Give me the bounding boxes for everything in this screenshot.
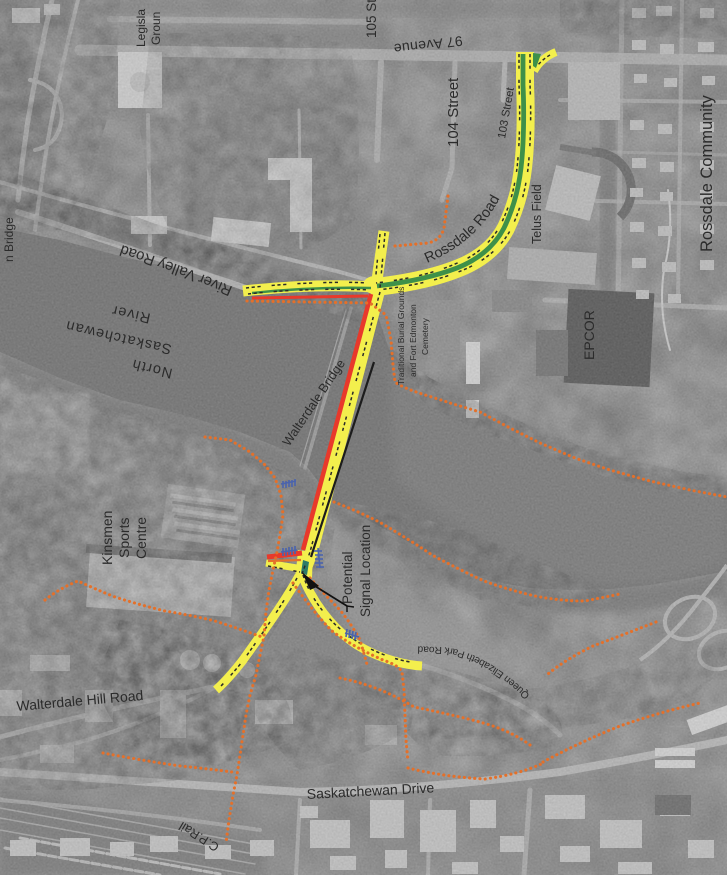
svg-text:Groun: Groun (149, 12, 163, 45)
svg-text:Legisla: Legisla (134, 9, 148, 47)
svg-text:Cemetery: Cemetery (420, 317, 430, 355)
svg-text:105 St: 105 St (364, 0, 379, 38)
svg-text:Telus Field: Telus Field (530, 184, 544, 244)
svg-text:n Bridge: n Bridge (2, 217, 16, 262)
svg-text:Signal Location: Signal Location (358, 525, 373, 617)
svg-text:Kinsmen: Kinsmen (99, 511, 115, 565)
svg-text:104 Street: 104 Street (445, 77, 462, 147)
svg-text:Sports: Sports (116, 518, 132, 558)
svg-text:and Fort Edmonton: and Fort Edmonton (408, 304, 418, 377)
svg-text:EPCOR: EPCOR (581, 310, 597, 360)
svg-text:Traditional Burial Grounds: Traditional Burial Grounds (396, 287, 406, 385)
svg-text:Rossdale Community: Rossdale Community (698, 94, 716, 252)
svg-text:Centre: Centre (133, 517, 149, 559)
svg-text:Potential: Potential (340, 551, 355, 604)
